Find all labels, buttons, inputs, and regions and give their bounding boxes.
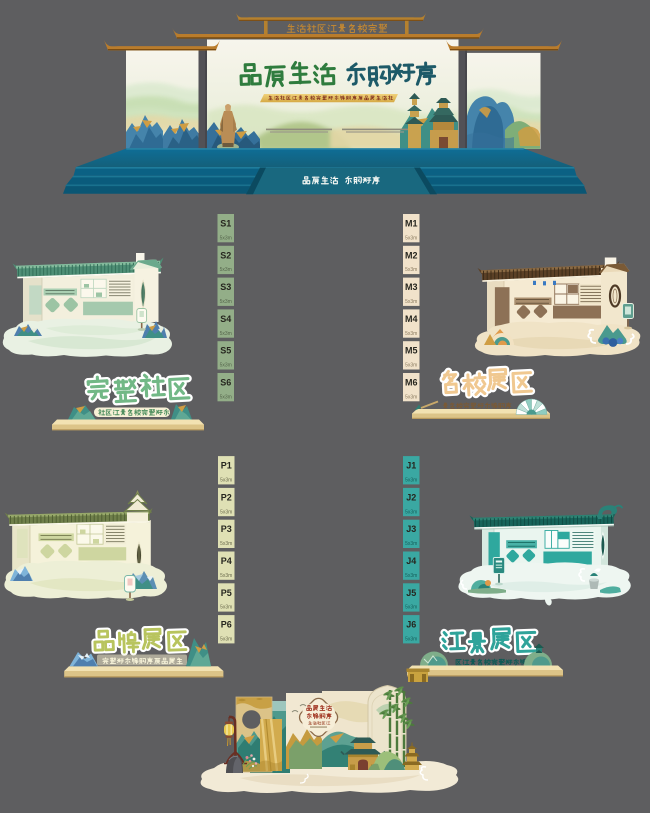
svg-text:5x3m: 5x3m (220, 331, 232, 337)
svg-text:5x3m: 5x3m (220, 509, 232, 515)
svg-text:S5: S5 (220, 346, 231, 356)
svg-text:5x3m: 5x3m (405, 637, 417, 643)
svg-text:M5: M5 (405, 346, 418, 356)
svg-text:5x3m: 5x3m (220, 299, 232, 305)
svg-text:M3: M3 (405, 282, 418, 292)
svg-text:S1: S1 (220, 219, 231, 229)
svg-text:M2: M2 (405, 250, 418, 260)
svg-text:P5: P5 (221, 588, 232, 598)
svg-text:5x3m: 5x3m (405, 299, 417, 305)
svg-text:5x3m: 5x3m (405, 573, 417, 579)
svg-text:5x3m: 5x3m (405, 394, 417, 400)
svg-text:J6: J6 (406, 620, 416, 630)
svg-text:5x3m: 5x3m (220, 235, 232, 241)
svg-text:S2: S2 (220, 250, 231, 260)
svg-text:5x3m: 5x3m (220, 541, 232, 547)
svg-text:J4: J4 (406, 556, 416, 566)
svg-text:S6: S6 (220, 378, 231, 388)
svg-text:S4: S4 (220, 314, 231, 324)
svg-text:5x3m: 5x3m (405, 605, 417, 611)
svg-text:5x3m: 5x3m (405, 478, 417, 484)
svg-text:P3: P3 (221, 524, 232, 534)
svg-text:5x3m: 5x3m (220, 478, 232, 484)
svg-text:P6: P6 (221, 620, 232, 630)
svg-text:5x3m: 5x3m (405, 235, 417, 241)
svg-text:M6: M6 (405, 378, 418, 388)
svg-text:J2: J2 (406, 492, 416, 502)
svg-text:J1: J1 (406, 461, 416, 471)
svg-text:5x3m: 5x3m (405, 541, 417, 547)
svg-text:5x3m: 5x3m (220, 363, 232, 369)
svg-text:5x3m: 5x3m (220, 637, 232, 643)
svg-text:J3: J3 (406, 524, 416, 534)
svg-text:5x3m: 5x3m (405, 267, 417, 273)
svg-text:5x3m: 5x3m (405, 363, 417, 369)
svg-text:5x3m: 5x3m (220, 394, 232, 400)
svg-text:5x3m: 5x3m (405, 331, 417, 337)
svg-text:P1: P1 (221, 461, 232, 471)
svg-text:P4: P4 (221, 556, 232, 566)
svg-text:S3: S3 (220, 282, 231, 292)
svg-text:5x3m: 5x3m (405, 509, 417, 515)
svg-text:M1: M1 (405, 219, 418, 229)
svg-text:J5: J5 (406, 588, 416, 598)
svg-text:M4: M4 (405, 314, 418, 324)
svg-text:5x3m: 5x3m (220, 573, 232, 579)
svg-text:P2: P2 (221, 492, 232, 502)
svg-text:5x3m: 5x3m (220, 605, 232, 611)
svg-text:5x3m: 5x3m (220, 267, 232, 273)
